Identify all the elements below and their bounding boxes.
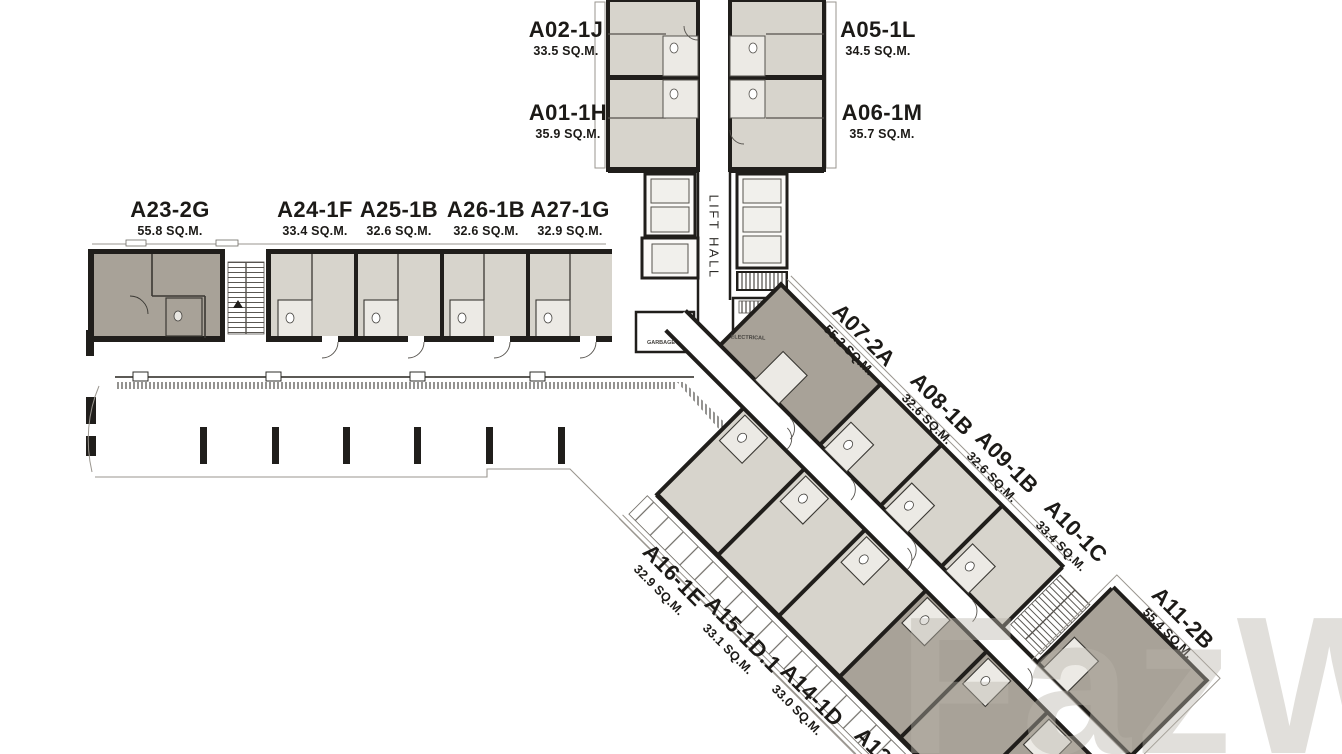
unit-label-a25: A25-1B32.6 SQ.M. <box>360 198 438 238</box>
unit-label-a24: A24-1F33.4 SQ.M. <box>277 198 353 238</box>
garbage-label: GARBAGE <box>647 340 675 346</box>
units-a24-a27-shape <box>271 254 612 358</box>
terrace-columns <box>200 427 565 464</box>
unit-label-a01: A01-1H35.9 SQ.M. <box>529 101 607 141</box>
unit-label-a05: A05-1L34.5 SQ.M. <box>840 18 916 58</box>
electrical-label: ELECTRICAL <box>730 334 765 341</box>
lift-hall-label: LIFT HALL <box>707 194 722 279</box>
stairwell-left-wing <box>220 249 271 342</box>
hatched-edge <box>117 382 677 389</box>
unit-label-a23: A23-2G55.8 SQ.M. <box>130 198 209 238</box>
top-wing <box>595 0 836 173</box>
unit-a23-shape <box>88 249 222 342</box>
unit-label-a27: A27-1G32.9 SQ.M. <box>530 198 609 238</box>
unit-label-a02: A02-1J33.5 SQ.M. <box>529 18 604 58</box>
unit-label-a26: A26-1B32.6 SQ.M. <box>447 198 525 238</box>
floor-plan: A02-1J33.5 SQ.M. A01-1H35.9 SQ.M. A05-1L… <box>0 0 1342 754</box>
watermark: FazWaz <box>898 588 1342 754</box>
unit-label-a06: A06-1M35.7 SQ.M. <box>842 101 923 141</box>
